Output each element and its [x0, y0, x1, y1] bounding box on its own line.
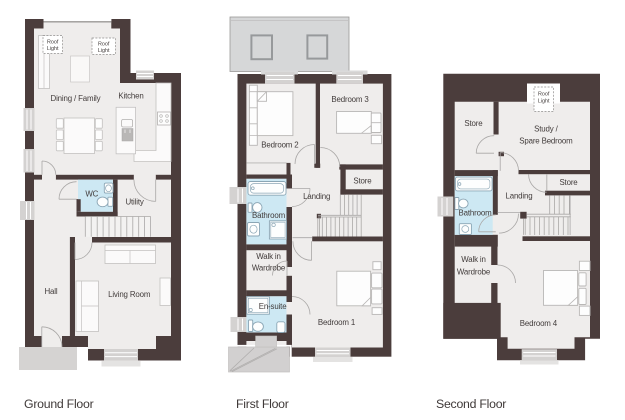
- svg-text:Living Room: Living Room: [108, 290, 151, 299]
- svg-text:Second Floor: Second Floor: [436, 397, 506, 411]
- svg-text:Bathroom: Bathroom: [458, 209, 492, 218]
- svg-text:Light: Light: [47, 46, 59, 52]
- svg-text:Roof: Roof: [98, 42, 110, 48]
- svg-text:Dining / Family: Dining / Family: [51, 94, 101, 103]
- svg-text:En-suite: En-suite: [259, 302, 288, 311]
- svg-text:Bedroom 4: Bedroom 4: [520, 319, 558, 328]
- svg-text:Light: Light: [98, 48, 110, 54]
- svg-text:Hall: Hall: [45, 287, 58, 296]
- svg-text:Bedroom 1: Bedroom 1: [318, 318, 355, 327]
- svg-text:Store: Store: [559, 178, 578, 187]
- svg-text:Wardrobe: Wardrobe: [457, 268, 491, 277]
- svg-text:Ground Floor: Ground Floor: [24, 397, 94, 411]
- svg-text:WC: WC: [85, 190, 98, 199]
- svg-text:Bedroom 2: Bedroom 2: [261, 140, 298, 149]
- svg-text:First Floor: First Floor: [236, 397, 289, 411]
- svg-text:Kitchen: Kitchen: [118, 91, 143, 100]
- svg-text:Bathroom: Bathroom: [252, 211, 286, 220]
- svg-text:Landing: Landing: [303, 192, 330, 201]
- svg-text:Store: Store: [464, 119, 483, 128]
- svg-text:Study /: Study /: [534, 125, 558, 134]
- svg-text:Light: Light: [538, 98, 550, 104]
- svg-text:Roof: Roof: [538, 92, 550, 98]
- svg-text:Spare Bedroom: Spare Bedroom: [519, 137, 573, 146]
- svg-text:Wardrobe: Wardrobe: [252, 264, 286, 273]
- svg-text:Bedroom 3: Bedroom 3: [331, 95, 369, 104]
- svg-text:Walk in: Walk in: [461, 255, 486, 264]
- svg-text:Store: Store: [353, 176, 372, 185]
- svg-text:Walk in: Walk in: [256, 252, 281, 261]
- svg-text:Landing: Landing: [505, 191, 532, 200]
- svg-text:Roof: Roof: [47, 40, 59, 46]
- svg-text:Utility: Utility: [125, 198, 143, 207]
